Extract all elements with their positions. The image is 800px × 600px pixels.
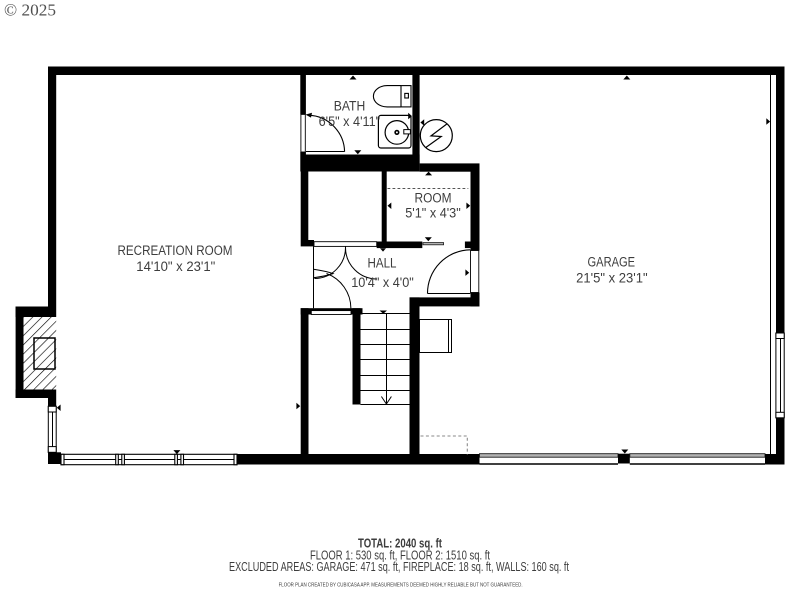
svg-text:© 2025: © 2025 [4,1,56,20]
svg-text:14'10" x 23'1": 14'10" x 23'1" [136,259,215,274]
svg-text:ROOM: ROOM [415,191,452,206]
svg-text:21'5" x 23'1": 21'5" x 23'1" [576,271,648,286]
svg-text:FLOOR PLAN CREATED BY CUBICASA: FLOOR PLAN CREATED BY CUBICASA APP. MEAS… [279,582,523,588]
svg-text:RECREATION ROOM: RECREATION ROOM [118,243,233,258]
svg-text:5'1" x 4'3": 5'1" x 4'3" [405,206,461,221]
svg-text:HALL: HALL [368,256,397,271]
svg-text:GARAGE: GARAGE [588,254,636,269]
svg-text:BATH: BATH [334,99,366,114]
svg-text:10'4" x 4'0": 10'4" x 4'0" [351,275,414,290]
svg-text:6'5" x 4'11": 6'5" x 4'11" [319,114,381,129]
svg-text:EXCLUDED AREAS: GARAGE: 471 sq: EXCLUDED AREAS: GARAGE: 471 sq. ft, FIRE… [229,560,569,574]
